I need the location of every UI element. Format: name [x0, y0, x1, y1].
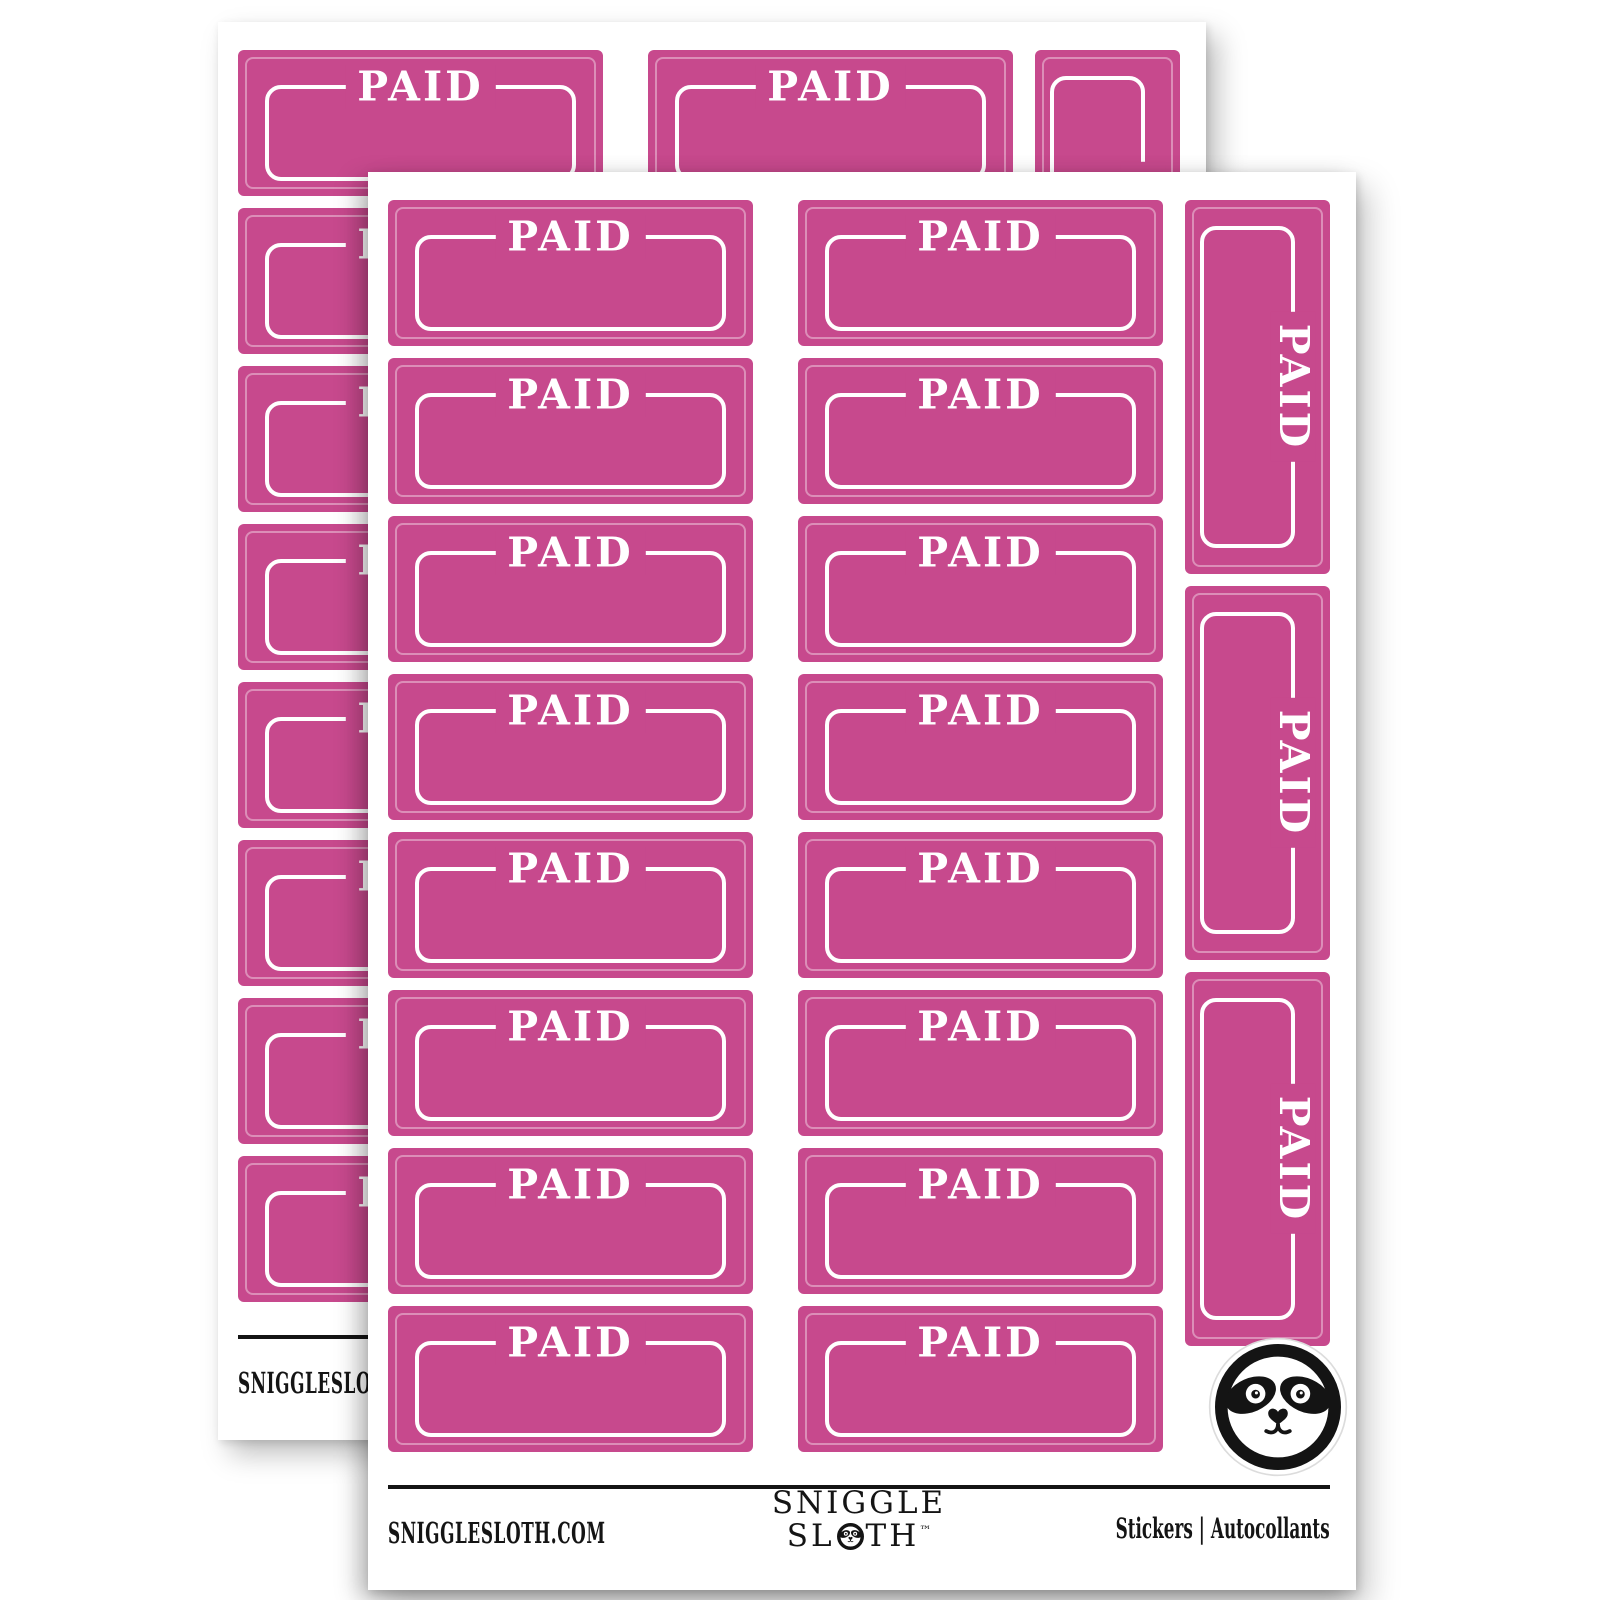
- paid-label: PAID: [1271, 1084, 1316, 1234]
- sticker-sheet-front: PAIDPAIDPAIDPAIDPAIDPAIDPAIDPAID PAIDPAI…: [368, 172, 1356, 1590]
- paid-label: PAID: [905, 1321, 1055, 1366]
- paid-sticker-horizontal: PAID: [798, 516, 1163, 662]
- paid-sticker-horizontal: PAID: [798, 200, 1163, 346]
- brand-line2-post: TH: [866, 1518, 920, 1554]
- brand-line2-pre: SL: [787, 1518, 835, 1554]
- paid-label: PAID: [755, 65, 905, 110]
- sloth-badge-sticker: [1208, 1337, 1348, 1477]
- paid-label: PAID: [495, 1005, 645, 1050]
- paid-sticker-vertical: PAID: [1185, 200, 1330, 574]
- product-image: PAIDPAIDPAIDPAIDPAIDPAIDPAIDPAID PAIDPAI…: [0, 0, 1600, 1600]
- paid-sticker-horizontal: PAID: [388, 1148, 753, 1294]
- paid-label: PAID: [495, 1321, 645, 1366]
- type-separator: |: [1193, 1512, 1211, 1545]
- paid-label: PAID: [495, 215, 645, 260]
- paid-label: PAID: [905, 531, 1055, 576]
- sloth-face-icon-small: [836, 1522, 865, 1551]
- footer-product-type: Stickers|Autocollants: [1116, 1512, 1330, 1545]
- paid-label: PAID: [495, 847, 645, 892]
- paid-label: PAID: [495, 689, 645, 734]
- paid-sticker-horizontal: PAID: [798, 1148, 1163, 1294]
- paid-sticker-horizontal: PAID: [388, 516, 753, 662]
- paid-sticker-horizontal: PAID: [798, 990, 1163, 1136]
- paid-sticker-horizontal: PAID: [388, 832, 753, 978]
- sticker-column-vertical: PAIDPAIDPAID: [1185, 200, 1330, 1346]
- paid-sticker-horizontal: PAID: [798, 832, 1163, 978]
- paid-sticker-horizontal: PAID: [798, 674, 1163, 820]
- paid-sticker-horizontal: PAID: [388, 200, 753, 346]
- paid-sticker-horizontal: PAID: [388, 674, 753, 820]
- paid-label: PAID: [905, 373, 1055, 418]
- sloth-face-icon: [1208, 1337, 1348, 1477]
- paid-label: PAID: [905, 215, 1055, 260]
- paid-label: PAID: [905, 1005, 1055, 1050]
- brand-trademark: ™: [919, 1524, 931, 1538]
- paid-label: PAID: [1271, 698, 1316, 848]
- paid-sticker-horizontal: PAID: [388, 990, 753, 1136]
- paid-label: PAID: [495, 531, 645, 576]
- paid-sticker-vertical: PAID: [1185, 972, 1330, 1346]
- paid-sticker-horizontal: PAID: [798, 1306, 1163, 1452]
- sticker-column-middle: PAIDPAIDPAIDPAIDPAIDPAIDPAIDPAID: [798, 200, 1163, 1452]
- paid-label: PAID: [905, 847, 1055, 892]
- paid-sticker-horizontal: PAID: [388, 358, 753, 504]
- paid-sticker-horizontal: PAID: [388, 1306, 753, 1452]
- paid-label: PAID: [905, 689, 1055, 734]
- paid-label: PAID: [495, 373, 645, 418]
- paid-label: PAID: [495, 1163, 645, 1208]
- paid-sticker-horizontal: PAID: [798, 358, 1163, 504]
- paid-label: PAID: [905, 1163, 1055, 1208]
- type-french: Autocollants: [1211, 1512, 1330, 1545]
- paid-sticker-vertical: PAID: [1185, 586, 1330, 960]
- type-english: Stickers: [1116, 1512, 1193, 1545]
- sticker-column-left: PAIDPAIDPAIDPAIDPAIDPAIDPAIDPAID: [388, 200, 753, 1452]
- paid-label: PAID: [345, 65, 495, 110]
- paid-label: PAID: [1271, 312, 1316, 462]
